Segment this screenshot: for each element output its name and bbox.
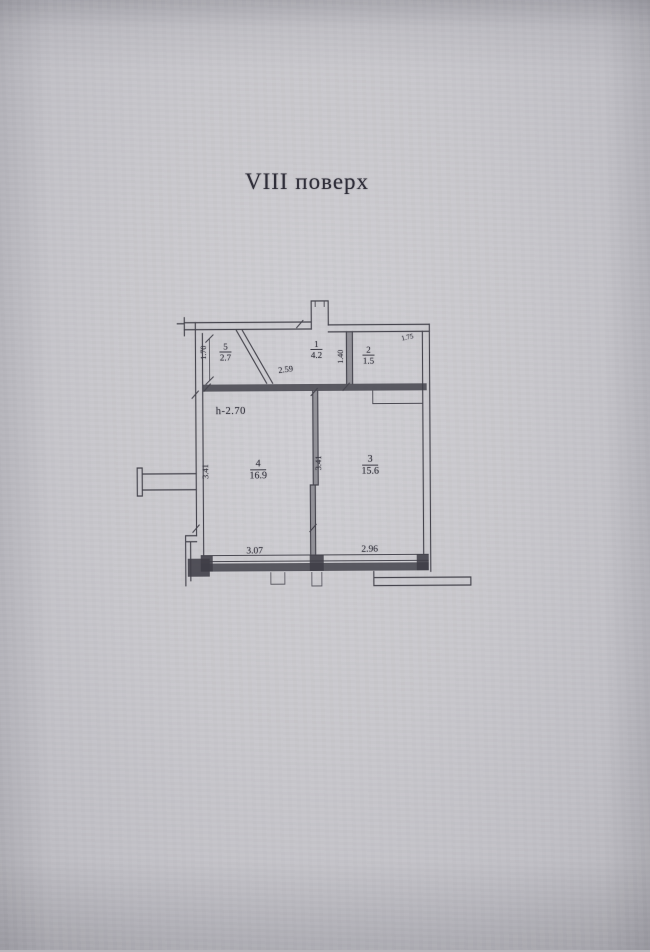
room-1-area: 4.2 (311, 350, 322, 360)
dim-room3-width: 2.96 (361, 545, 378, 555)
room-4-label: 4 16.9 (245, 459, 271, 481)
dim-room4-height: 3.41 (200, 464, 210, 479)
dim-room3-height: 3.41 (313, 455, 323, 470)
room-1-number: 1 (314, 340, 319, 348)
room-2-number: 2 (366, 346, 371, 354)
dim-hall-depth: 1.40 (336, 350, 345, 364)
room-3-number: 3 (368, 455, 373, 464)
floor-plan: 5 2.7 1 4.2 2 1.5 4 16.9 3 15.6 1.70 2.5… (0, 0, 650, 952)
room-5-number: 5 (223, 343, 228, 351)
dim-left-top-height: 1.70 (199, 346, 208, 360)
photo-paper: VIII поверх (0, 0, 650, 950)
room-3-label: 3 15.6 (357, 455, 383, 477)
dim-room4-width: 3.07 (246, 546, 263, 556)
floor-plan-drawing (132, 291, 479, 593)
room-3-area: 15.6 (361, 466, 379, 477)
room-2-label: 2 1.5 (355, 346, 381, 366)
room-2-area: 1.5 (363, 356, 374, 366)
room-4-number: 4 (256, 459, 261, 468)
dim-hall-width: 2.59 (278, 363, 294, 375)
room-1-label: 1 4.2 (303, 340, 329, 360)
room-5-label: 5 2.7 (212, 342, 238, 362)
room-5-area: 2.7 (220, 352, 231, 362)
ceiling-height-note: h-2.70 (216, 406, 246, 417)
room-4-area: 16.9 (249, 470, 267, 481)
